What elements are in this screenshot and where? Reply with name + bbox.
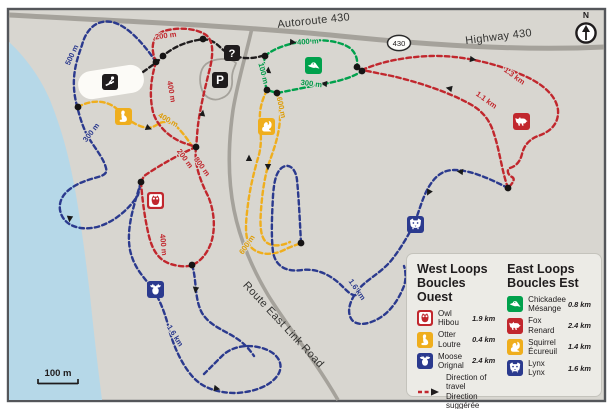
lynx-icon [407, 216, 424, 233]
legend-item-lynx: Lynx Lynx 1.6 km [507, 359, 591, 377]
trail-length: 0.4 km [470, 335, 495, 344]
highway-shield: 430 [388, 35, 411, 50]
owl-icon [417, 310, 433, 326]
legend-item-chickadee: Chickadee Mésange 0.8 km [507, 295, 591, 313]
trail-length: 1.6 km [566, 364, 591, 373]
otter-icon [115, 108, 132, 125]
moose-icon [147, 281, 164, 298]
trail-length: 0.8 km [566, 300, 591, 309]
legend-item-otter: Otter Loutre 0.4 km [417, 330, 495, 348]
trail-distance-label: 400 m [297, 36, 319, 46]
trail-length: 2.4 km [566, 321, 591, 330]
legend-west-title: West Loops Boucles Ouest [417, 262, 495, 304]
east-loops-title-en: East Loops [507, 262, 591, 276]
legend-item-direction: Direction of travel Direction suggérée [417, 373, 495, 409]
scale-label: 100 m [45, 368, 72, 379]
trail-name-fr: Lynx [528, 368, 545, 377]
lynx-icon [507, 360, 523, 376]
chickadee-icon [305, 57, 322, 74]
trail-name-fr: Orignal [438, 361, 464, 370]
legend-east-column: East Loops Boucles Est Chickadee Mésange… [507, 262, 591, 409]
trail-name-en: Chickadee [528, 295, 566, 304]
trail-name-en: Lynx [528, 359, 545, 368]
legend-west-column: West Loops Boucles Ouest Owl Hibou 1.9 k… [417, 262, 495, 409]
trail-map-page: ? P [0, 0, 613, 409]
visitor-centre-icon [224, 45, 240, 61]
moose-icon [417, 353, 433, 369]
legend-panel: West Loops Boucles Ouest Owl Hibou 1.9 k… [406, 253, 602, 397]
trail-name-fr: Écureuil [528, 347, 557, 356]
legend-item-fox: Fox Renard 2.4 km [507, 316, 591, 334]
fox-icon [513, 113, 530, 130]
trail-length: 1.4 km [566, 342, 591, 351]
trail-name-fr: Loutre [438, 340, 461, 349]
trail-name-en: Owl [438, 309, 459, 318]
legend-item-owl: Owl Hibou 1.9 km [417, 309, 495, 327]
owl-icon [147, 192, 164, 209]
sliding-hill-icon [102, 74, 118, 90]
trail-length: 1.9 km [470, 314, 495, 323]
legend-east-title: East Loops Boucles Est [507, 262, 591, 290]
squirrel-icon [258, 118, 275, 135]
chickadee-icon [507, 296, 523, 312]
direction-label-fr: Direction suggérée [446, 392, 495, 409]
trail-length: 2.4 km [470, 356, 495, 365]
parking-icon [212, 72, 228, 88]
squirrel-icon [507, 339, 523, 355]
highway-shield-number: 430 [393, 39, 406, 48]
fox-icon [507, 318, 523, 334]
trail-name-fr: Renard [528, 326, 554, 335]
west-loops-title-en: West Loops [417, 262, 495, 276]
trail-name-en: Otter [438, 330, 461, 339]
trail-name-en: Fox [528, 316, 554, 325]
trail-name-en: Moose [438, 352, 464, 361]
trail-name-en: Squirrel [528, 338, 557, 347]
trail-name-fr: Hibou [438, 318, 459, 327]
otter-icon [417, 332, 433, 348]
trail-name-fr: Mésange [528, 304, 566, 313]
direction-of-travel-icon [417, 387, 441, 397]
direction-label-en: Direction of travel [446, 373, 495, 391]
west-loops-title-fr: Boucles Ouest [417, 276, 495, 304]
east-loops-title-fr: Boucles Est [507, 276, 591, 290]
legend-item-moose: Moose Orignal 2.4 km [417, 352, 495, 370]
legend-item-squirrel: Squirrel Écureuil 1.4 km [507, 338, 591, 356]
north-label: N [583, 10, 589, 20]
